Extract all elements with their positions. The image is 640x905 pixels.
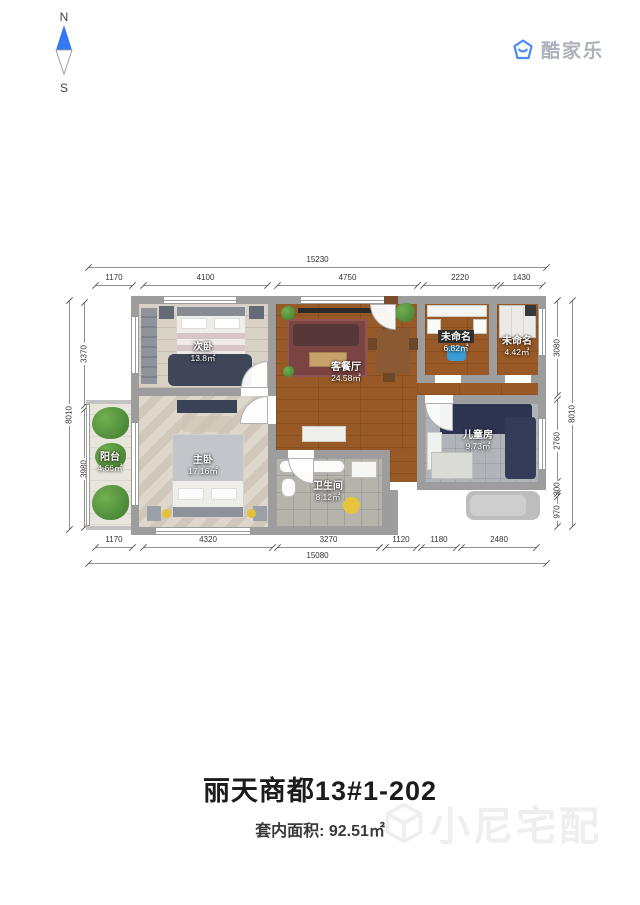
dim-left-total: 8010 bbox=[69, 300, 70, 530]
plant-icon bbox=[283, 366, 294, 377]
dim-bottom-seg-4: 1120 bbox=[385, 547, 417, 548]
compass: N S bbox=[48, 10, 80, 95]
dim-top-seg-5: 1430 bbox=[500, 285, 543, 286]
toilet bbox=[281, 478, 296, 497]
chair bbox=[409, 338, 418, 350]
dim-right-seg-4: 970 bbox=[557, 496, 558, 527]
wall-bath-top-b bbox=[314, 450, 390, 458]
window-kids-right bbox=[538, 418, 546, 470]
room-label-unnamed-2: 未命名 4.42㎡ bbox=[502, 336, 532, 357]
dim-right-total: 8010 bbox=[572, 300, 573, 527]
plant-icon bbox=[395, 303, 415, 322]
compass-north-label: N bbox=[48, 10, 80, 24]
hall-strip-floor bbox=[417, 383, 546, 395]
dim-bottom-seg-3: 3270 bbox=[277, 547, 380, 548]
wall-unnamed-bottom-b bbox=[461, 375, 505, 383]
rug bbox=[182, 416, 232, 432]
dim-left-seg-2: 3980 bbox=[84, 409, 85, 528]
window-second-bedroom bbox=[131, 316, 139, 374]
watermark-cube-icon bbox=[382, 801, 426, 845]
window-living-top bbox=[300, 296, 386, 304]
dim-right-seg-1: 3080 bbox=[557, 300, 558, 396]
window-master-bottom bbox=[155, 527, 251, 535]
dim-bottom-seg-1: 1170 bbox=[95, 547, 133, 548]
wall-master-bath bbox=[268, 424, 276, 535]
bed-pillow bbox=[178, 488, 204, 500]
wall-bedroom-living bbox=[268, 296, 276, 396]
compass-south-label: S bbox=[48, 81, 80, 95]
wall-unnamed-bottom-a bbox=[417, 375, 435, 383]
wardrobe bbox=[141, 308, 157, 384]
room-label-living-dining: 客餐厅 24.58㎡ bbox=[331, 362, 361, 383]
plant-icon bbox=[281, 306, 295, 320]
watermark: 小尼宅配 bbox=[382, 794, 602, 852]
compass-needle-icon bbox=[53, 24, 75, 76]
wall-bedroom-bottom bbox=[139, 388, 241, 396]
dim-bottom-seg-2: 4320 bbox=[143, 547, 273, 548]
lamp bbox=[162, 509, 171, 518]
dim-top-seg-3: 4750 bbox=[277, 285, 418, 286]
room-label-second-bedroom: 次卧 13.8㎡ bbox=[190, 342, 215, 363]
wall-between-unnamed bbox=[489, 296, 497, 375]
bed-pillow bbox=[181, 318, 207, 329]
bed-headboard bbox=[173, 507, 243, 517]
nightstand bbox=[147, 506, 161, 521]
dim-top-seg-4: 2220 bbox=[423, 285, 497, 286]
dim-top-total: 15230 bbox=[88, 267, 547, 268]
room-label-master-bedroom: 主卧 17.16㎡ bbox=[188, 455, 218, 476]
kujiale-logo-text: 酷家乐 bbox=[541, 36, 604, 63]
nightstand bbox=[159, 306, 174, 319]
room-label-unnamed-1: 未命名 6.82㎡ bbox=[441, 332, 471, 353]
cabinet bbox=[427, 305, 487, 317]
hall-corridor-floor bbox=[390, 450, 417, 482]
washer bbox=[473, 319, 487, 334]
wall-kids-left bbox=[417, 395, 425, 490]
dim-top-seg-2: 4100 bbox=[143, 285, 268, 286]
plant-icon bbox=[92, 407, 129, 439]
dim-bottom-seg-6: 2480 bbox=[461, 547, 537, 548]
sink bbox=[351, 461, 377, 478]
chair bbox=[368, 338, 377, 350]
wall-kids-top bbox=[453, 395, 546, 403]
plant-icon bbox=[92, 485, 129, 520]
dim-left-seg-1: 3370 bbox=[84, 302, 85, 406]
dresser bbox=[177, 400, 237, 413]
floorplan-page: N S 酷家乐 15230 1170 4100 4750 2220 1430 1… bbox=[0, 0, 640, 905]
chair bbox=[383, 373, 395, 382]
room-label-balcony: 阳台 4.66㎡ bbox=[97, 452, 122, 473]
window-unnamed2-right bbox=[538, 308, 546, 356]
nightstand bbox=[249, 306, 264, 319]
balcony-wall-top bbox=[86, 400, 131, 404]
watermark-text: 小尼宅配 bbox=[430, 794, 602, 852]
storage-box bbox=[525, 305, 536, 316]
stool bbox=[343, 497, 360, 514]
bed-pillow bbox=[211, 488, 237, 500]
wall-step bbox=[390, 490, 398, 535]
crib bbox=[431, 452, 473, 479]
wall-unnamed1-left bbox=[417, 296, 425, 383]
window-balcony-outer bbox=[86, 404, 90, 526]
chaise-cushion bbox=[470, 495, 526, 516]
wall-bath-right bbox=[382, 450, 390, 535]
dim-right-seg-3: 300 bbox=[557, 484, 558, 494]
room-label-bathroom: 卫生间 8.12㎡ bbox=[313, 481, 343, 502]
dim-bottom-seg-5: 1180 bbox=[421, 547, 457, 548]
room-label-kids-room: 儿童房 9.73㎡ bbox=[463, 430, 493, 451]
kujiale-logo: 酷家乐 bbox=[511, 36, 604, 63]
dim-right-seg-2: 2760 bbox=[557, 399, 558, 482]
dim-top-seg-1: 1170 bbox=[95, 285, 133, 286]
kujiale-shield-icon bbox=[511, 38, 535, 62]
balcony-wall-bottom bbox=[86, 526, 131, 530]
window-balcony-door bbox=[131, 422, 139, 506]
wall-bath-top-a bbox=[276, 450, 288, 458]
bed-headboard bbox=[177, 307, 245, 316]
bed-pillow bbox=[214, 318, 240, 329]
sofa bbox=[293, 324, 359, 346]
dim-bottom-total: 15080 bbox=[88, 563, 547, 564]
chaise bbox=[466, 491, 540, 520]
entry-door-leaf bbox=[384, 296, 398, 304]
wall-unnamed-bottom-c bbox=[531, 375, 546, 383]
dining-table bbox=[376, 328, 410, 374]
wall-bottom-right bbox=[417, 482, 546, 490]
console-cabinet bbox=[302, 426, 346, 442]
window-second-bedroom-top bbox=[163, 296, 237, 304]
lamp bbox=[247, 509, 256, 518]
sofa bbox=[505, 417, 536, 479]
